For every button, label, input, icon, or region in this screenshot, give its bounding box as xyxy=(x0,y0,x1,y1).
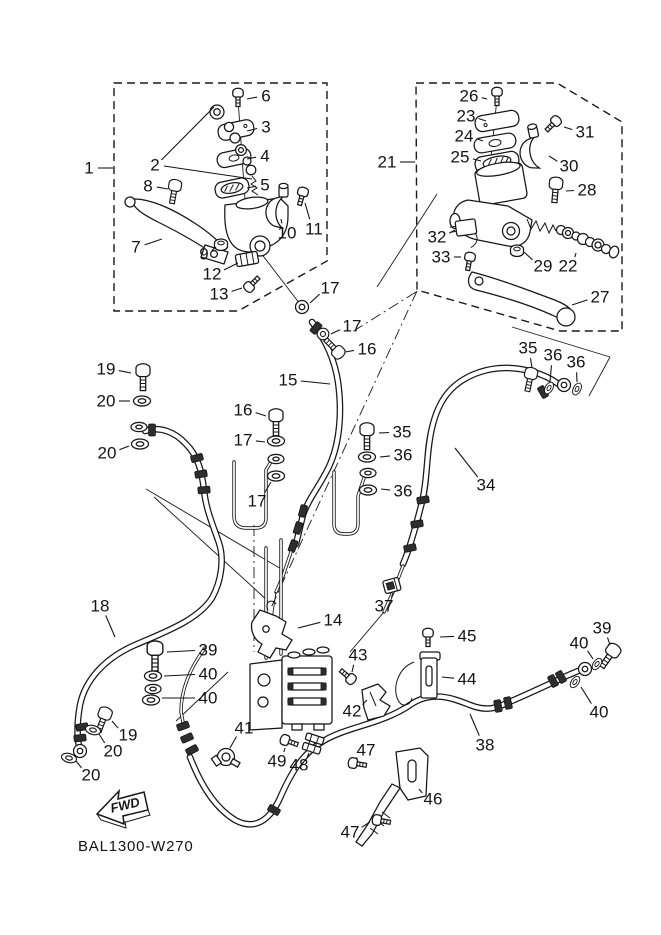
lever-pivot-bolt-28 xyxy=(548,177,563,204)
callout-7: 7 xyxy=(131,238,140,257)
callout-35: 35 xyxy=(393,423,412,442)
callout-5: 5 xyxy=(260,176,269,195)
callout-8: 8 xyxy=(143,177,152,196)
leader-line-12 xyxy=(224,263,238,270)
callout-labels: 1263458791011121317171615212623242531302… xyxy=(76,87,611,842)
callout-36: 36 xyxy=(394,482,413,501)
pivot-nut-29 xyxy=(511,245,524,257)
washer-36 xyxy=(360,485,377,495)
callout-20: 20 xyxy=(82,766,101,785)
reservoir-screw-6 xyxy=(233,88,243,106)
callout-1: 1 xyxy=(84,159,93,178)
callout-40: 40 xyxy=(199,689,218,708)
bracket-46 xyxy=(356,748,428,846)
leader-line-17 xyxy=(310,294,320,303)
callout-36: 36 xyxy=(394,446,413,465)
lever-pivot-bolt-8 xyxy=(166,179,183,205)
hose-collar xyxy=(195,470,208,479)
banjo-eyelet xyxy=(131,422,147,431)
callout-28: 28 xyxy=(578,181,597,200)
piston-kit-22 xyxy=(527,219,620,259)
leader-line-28 xyxy=(566,191,574,192)
hose-collar xyxy=(417,496,430,505)
diagram-code: BAL1300-W270 xyxy=(78,838,194,855)
bracket-bolt-45 xyxy=(423,628,433,646)
callout-4: 4 xyxy=(260,147,269,166)
callout-40: 40 xyxy=(570,634,589,653)
callout-43: 43 xyxy=(349,646,368,665)
hose-collar xyxy=(180,732,194,743)
leader-line-2 xyxy=(161,107,214,160)
callout-19: 19 xyxy=(97,360,116,379)
leader-line-2 xyxy=(164,166,252,179)
washer-40 xyxy=(145,671,162,681)
callout-27: 27 xyxy=(591,288,610,307)
banjo-eyelet xyxy=(579,663,592,676)
hose-collar xyxy=(411,520,424,529)
callout-20: 20 xyxy=(98,444,117,463)
union-bolt-19 xyxy=(136,364,150,391)
switch-screw-33 xyxy=(463,251,476,271)
leader-line-6 xyxy=(247,97,257,99)
callout-10: 10 xyxy=(278,224,297,243)
leader-line-16 xyxy=(256,413,266,416)
leader-line-27 xyxy=(572,300,588,305)
banjo-eyelet xyxy=(145,684,161,693)
parts-diagram-front-master-cylinder: FWD BAL1300-W270 12634587910111213171716… xyxy=(0,0,661,935)
washer-20 xyxy=(132,439,149,449)
callout-16: 16 xyxy=(234,401,253,420)
leader-line-15 xyxy=(301,381,330,384)
bracket-bolt-43 xyxy=(337,666,358,686)
leader-line-16 xyxy=(345,350,354,352)
diaphragm-plate-24 xyxy=(473,132,517,154)
callout-36: 36 xyxy=(544,346,563,365)
hose-clamp-41 xyxy=(211,749,240,768)
leader-line-7 xyxy=(145,239,162,245)
washer-17 xyxy=(296,301,309,314)
callout-20: 20 xyxy=(104,742,123,761)
leader-line-38 xyxy=(470,714,479,736)
callout-31: 31 xyxy=(576,123,595,142)
hose-collar xyxy=(185,744,199,756)
callout-35: 35 xyxy=(519,339,538,358)
hose-collar xyxy=(288,539,298,553)
callout-11: 11 xyxy=(305,220,323,239)
callout-20: 20 xyxy=(97,392,116,411)
callout-24: 24 xyxy=(455,127,474,146)
abs-bracket-14 xyxy=(251,601,292,658)
callout-47: 47 xyxy=(357,741,376,760)
callout-32: 32 xyxy=(428,228,447,247)
clamp-screw-13 xyxy=(242,274,262,294)
union-bolt-35 xyxy=(360,423,374,450)
callout-18: 18 xyxy=(91,597,110,616)
callout-39: 39 xyxy=(593,619,612,638)
banjo-eyelet xyxy=(268,454,284,463)
callout-29: 29 xyxy=(534,257,553,276)
banjo-eyelet xyxy=(360,468,376,477)
leader-line-8 xyxy=(157,187,168,189)
leader-line-36 xyxy=(380,456,390,457)
leader-line-19 xyxy=(112,721,118,728)
callout-14: 14 xyxy=(324,611,343,630)
leader-line-35 xyxy=(531,358,533,368)
leader-line-14 xyxy=(298,622,320,628)
callout-41: 41 xyxy=(235,719,254,738)
callout-48: 48 xyxy=(290,756,309,775)
leader-line-26 xyxy=(482,98,487,99)
callout-2: 2 xyxy=(150,156,159,175)
leader-line-17 xyxy=(256,441,265,442)
holder-bolt-31 xyxy=(543,114,563,134)
leader-line-29 xyxy=(524,252,533,260)
washer-36 xyxy=(571,382,584,397)
callout-47: 47 xyxy=(341,823,360,842)
callout-30: 30 xyxy=(560,157,579,176)
hose-clamp-37 xyxy=(382,577,401,594)
callout-37: 37 xyxy=(375,597,394,616)
callout-36: 36 xyxy=(567,353,586,372)
leader-line-17 xyxy=(331,330,340,334)
leader-line-34 xyxy=(455,448,478,477)
callout-17: 17 xyxy=(248,492,267,511)
callout-21: 21 xyxy=(378,153,397,172)
callout-49: 49 xyxy=(268,752,287,771)
callout-3: 3 xyxy=(261,118,270,137)
clamp-screw-49 xyxy=(279,734,300,750)
callout-16: 16 xyxy=(358,340,377,359)
hose-collar xyxy=(74,734,87,742)
callout-40: 40 xyxy=(590,703,609,722)
leader-line-18 xyxy=(106,615,115,637)
callout-9: 9 xyxy=(199,245,208,264)
fwd-direction-arrow: FWD xyxy=(97,791,150,828)
leader-line-30 xyxy=(549,156,557,161)
callout-46: 46 xyxy=(424,790,443,809)
callout-25: 25 xyxy=(451,148,470,167)
leader-line-36 xyxy=(381,489,390,490)
callout-45: 45 xyxy=(458,627,477,646)
callout-6: 6 xyxy=(261,87,270,106)
holder-bolt-11 xyxy=(294,186,309,206)
callout-40: 40 xyxy=(199,665,218,684)
abs-hydraulic-unit xyxy=(250,647,332,730)
leader-line-20 xyxy=(119,446,129,450)
leader-line-41 xyxy=(230,737,237,749)
callout-12: 12 xyxy=(203,265,222,284)
reservoir-screw-26 xyxy=(492,87,502,105)
hose-clamp-12 xyxy=(235,251,259,267)
reservoir-cap-plate-23 xyxy=(474,109,520,132)
callout-23: 23 xyxy=(457,107,476,126)
callout-33: 33 xyxy=(432,248,451,267)
brake-lever-27 xyxy=(469,272,575,326)
hose-collar xyxy=(403,543,416,552)
leader-line-11 xyxy=(305,203,310,219)
leader-line-19 xyxy=(119,371,131,373)
callout-17: 17 xyxy=(321,279,340,298)
banjo-eyelet xyxy=(558,379,571,392)
leader-line-39 xyxy=(167,651,195,653)
callout-39: 39 xyxy=(199,641,218,660)
leader-line-35 xyxy=(379,433,389,434)
hose-collar xyxy=(198,486,211,494)
washer-17 xyxy=(268,471,285,481)
banjo-eyelet xyxy=(74,745,87,758)
washer-36 xyxy=(359,452,376,462)
leader-line-44 xyxy=(442,677,454,678)
leader-line-13 xyxy=(232,288,242,291)
washer-20 xyxy=(134,396,151,406)
leader-line-45 xyxy=(440,636,454,637)
leader-line-40 xyxy=(581,687,591,704)
callout-17: 17 xyxy=(343,317,362,336)
washer-40 xyxy=(143,695,160,705)
callout-22: 22 xyxy=(559,257,578,276)
callout-42: 42 xyxy=(343,702,362,721)
callout-17: 17 xyxy=(234,431,253,450)
callout-13: 13 xyxy=(210,285,229,304)
leader-line-43 xyxy=(352,665,354,672)
hose-collar xyxy=(298,504,308,517)
washer-17 xyxy=(268,436,285,446)
callout-15: 15 xyxy=(279,371,298,390)
callout-44: 44 xyxy=(458,670,477,689)
pivot-nut-9 xyxy=(215,239,228,251)
union-bolt-16 xyxy=(269,409,283,436)
hose-collar xyxy=(149,424,156,436)
callout-38: 38 xyxy=(476,736,495,755)
leader-line-31 xyxy=(564,127,572,130)
hose-collar xyxy=(176,721,190,731)
callout-34: 34 xyxy=(477,476,496,495)
callout-26: 26 xyxy=(460,87,479,106)
union-bolt-39 xyxy=(147,641,163,671)
